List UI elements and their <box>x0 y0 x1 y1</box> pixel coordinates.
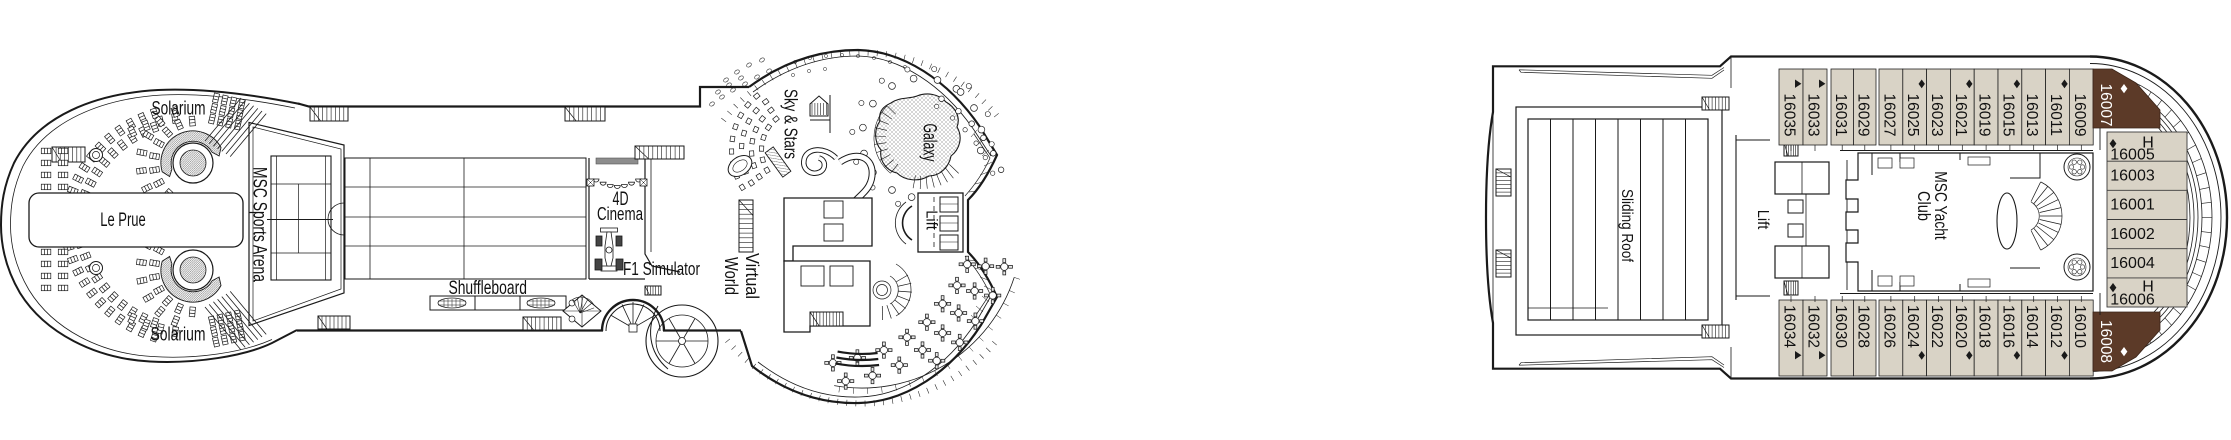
svg-text:16006: 16006 <box>2110 292 2155 309</box>
svg-text:Lift: Lift <box>1754 210 1771 230</box>
svg-text:16027: 16027 <box>1880 93 1897 136</box>
svg-text:Sliding Roof: Sliding Roof <box>1618 189 1635 263</box>
svg-text:16032: 16032 <box>1805 305 1822 348</box>
svg-text:16018: 16018 <box>1976 305 1993 348</box>
svg-text:16023: 16023 <box>1928 93 1945 136</box>
svg-text:16030: 16030 <box>1832 305 1849 348</box>
svg-text:Solarium: Solarium <box>152 97 206 119</box>
svg-text:16013: 16013 <box>2023 93 2040 136</box>
svg-text:16022: 16022 <box>1928 305 1945 348</box>
svg-text:F1 Simulator: F1 Simulator <box>623 259 700 279</box>
svg-text:Virtual: Virtual <box>742 253 762 299</box>
svg-text:16031: 16031 <box>1832 93 1849 136</box>
svg-text:16007: 16007 <box>2097 83 2114 126</box>
svg-text:World: World <box>721 257 741 295</box>
svg-text:16024: 16024 <box>1904 305 1921 348</box>
svg-text:16026: 16026 <box>1880 305 1897 348</box>
svg-text:16035: 16035 <box>1781 93 1798 136</box>
svg-text:Club: Club <box>1914 191 1934 221</box>
svg-text:16012: 16012 <box>2047 305 2064 348</box>
svg-text:Galaxy: Galaxy <box>919 124 940 162</box>
svg-text:16011: 16011 <box>2047 94 2064 136</box>
svg-text:16020: 16020 <box>1952 305 1969 348</box>
svg-text:Lift: Lift <box>923 210 940 230</box>
svg-text:16008: 16008 <box>2097 320 2114 363</box>
svg-text:16014: 16014 <box>2023 305 2040 348</box>
svg-text:16025: 16025 <box>1904 93 1921 136</box>
svg-text:16029: 16029 <box>1854 93 1871 136</box>
svg-text:Cinema: Cinema <box>597 204 644 224</box>
svg-text:16028: 16028 <box>1854 305 1871 348</box>
svg-text:16010: 16010 <box>2071 305 2088 348</box>
svg-text:Solarium: Solarium <box>151 324 206 346</box>
svg-text:MSC Sports Arena: MSC Sports Arena <box>249 167 271 282</box>
svg-text:16019: 16019 <box>1976 93 1993 136</box>
svg-text:16002: 16002 <box>2110 226 2155 243</box>
svg-text:16004: 16004 <box>2110 255 2155 272</box>
svg-text:16001: 16001 <box>2110 197 2155 214</box>
svg-text:16003: 16003 <box>2110 168 2155 185</box>
svg-text:16016: 16016 <box>1999 305 2016 348</box>
svg-text:16033: 16033 <box>1805 93 1822 136</box>
svg-text:Sky & Stars: Sky & Stars <box>781 89 801 159</box>
svg-text:16005: 16005 <box>2110 147 2155 164</box>
svg-text:16034: 16034 <box>1781 305 1798 348</box>
svg-text:16021: 16021 <box>1952 93 1969 136</box>
svg-text:16015: 16015 <box>1999 93 2016 136</box>
svg-text:16009: 16009 <box>2071 93 2088 136</box>
svg-text:Le Prue: Le Prue <box>100 210 146 231</box>
